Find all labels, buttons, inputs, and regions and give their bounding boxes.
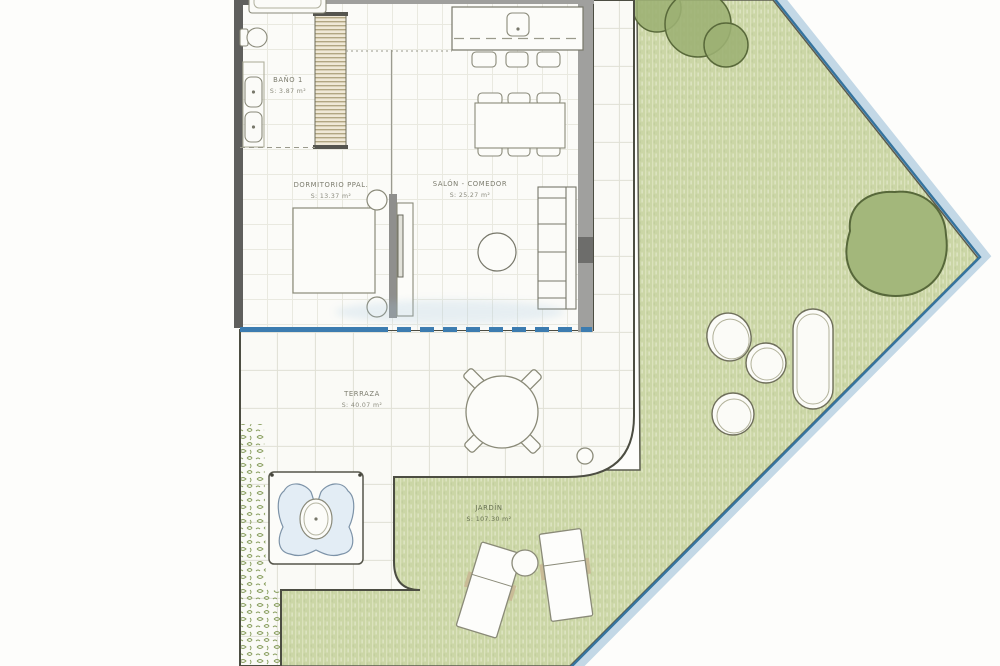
wall-partition bbox=[389, 194, 397, 318]
bed-icon bbox=[293, 208, 375, 293]
watermark-smudge bbox=[335, 300, 565, 324]
sofa-icon bbox=[538, 187, 576, 309]
garden-side-table-icon bbox=[512, 550, 538, 576]
label-dormitorio-area: S: 13.37 m² bbox=[311, 193, 352, 200]
wall-top-right bbox=[316, 0, 594, 4]
label-terraza-area: S: 40.07 m² bbox=[342, 402, 383, 409]
label-dormitorio: DORMITORIO PPAL. bbox=[294, 181, 369, 189]
stone-icon bbox=[793, 309, 833, 409]
tree-icon bbox=[704, 23, 748, 67]
toilet-icon bbox=[247, 28, 267, 47]
nightstand-icon bbox=[367, 190, 387, 210]
wall-left bbox=[234, 0, 243, 328]
label-jardin: JARDÍN bbox=[474, 503, 502, 512]
wardrobe bbox=[313, 12, 348, 149]
floor-plan-drawing: BAÑO 1 S: 3.87 m² DORMITORIO PPAL. S: 13… bbox=[0, 0, 1000, 666]
label-salon-area: S: 25.27 m² bbox=[450, 192, 491, 199]
wall-right-column bbox=[578, 237, 593, 263]
dining-set bbox=[475, 93, 565, 156]
salon-rug-icon bbox=[478, 233, 516, 271]
bar-stool-icon bbox=[537, 52, 560, 67]
dining-table-icon bbox=[475, 103, 565, 148]
bar-stool-icon bbox=[472, 52, 496, 67]
floor-plan-canvas: BAÑO 1 S: 3.87 m² DORMITORIO PPAL. S: 13… bbox=[0, 0, 1000, 666]
pool bbox=[269, 472, 363, 564]
label-terraza: TERRAZA bbox=[343, 390, 380, 398]
label-bano: BAÑO 1 bbox=[273, 75, 303, 84]
kitchen-sink-icon bbox=[507, 13, 529, 36]
bar-stool-icon bbox=[506, 52, 528, 67]
tv-icon bbox=[398, 215, 403, 277]
tree-large-icon bbox=[846, 192, 946, 296]
label-salon: SALÓN - COMEDOR bbox=[433, 179, 507, 188]
terrace-drain-icon bbox=[577, 448, 593, 464]
glass-door-fixed bbox=[240, 327, 374, 332]
stone-icon bbox=[746, 343, 786, 383]
label-jardin-area: S: 107.30 m² bbox=[467, 516, 512, 523]
terrace-round-table-icon bbox=[466, 376, 538, 448]
bathtub-icon bbox=[249, 0, 326, 13]
label-bano-area: S: 3.87 m² bbox=[270, 88, 306, 95]
